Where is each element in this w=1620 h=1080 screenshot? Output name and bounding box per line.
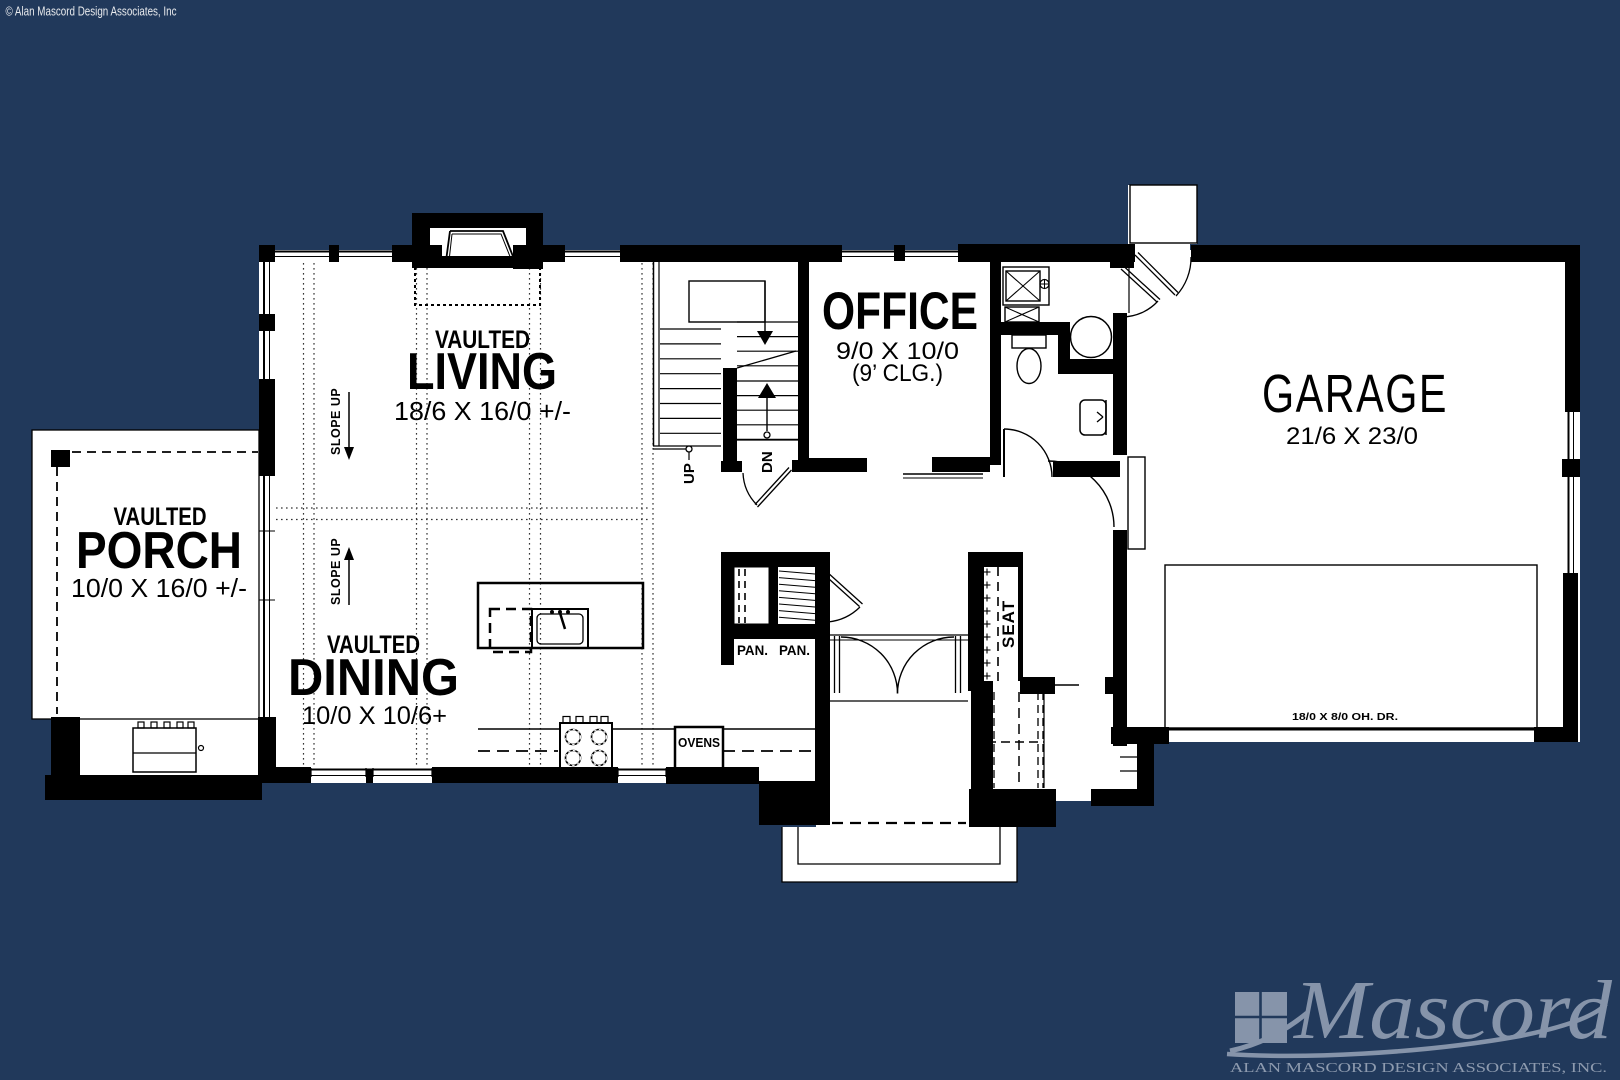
svg-text:UP: UP [681, 463, 698, 484]
svg-text:GARAGE: GARAGE [1262, 364, 1448, 424]
svg-text:OVENS: OVENS [678, 735, 720, 750]
svg-text:10/0 X 16/0 +/-: 10/0 X 16/0 +/- [71, 573, 247, 603]
svg-text:21/6 X 23/0: 21/6 X 23/0 [1286, 423, 1418, 450]
svg-text:Mascord: Mascord [1293, 964, 1613, 1057]
svg-text:18/6 X 16/0 +/-: 18/6 X 16/0 +/- [394, 396, 571, 426]
svg-text:SEAT: SEAT [999, 600, 1018, 648]
svg-text:LIVING: LIVING [407, 343, 557, 401]
svg-text:PAN.: PAN. [737, 642, 768, 658]
svg-text:PAN.: PAN. [779, 642, 810, 658]
svg-text:ALAN MASCORD DESIGN ASSOCIATES: ALAN MASCORD DESIGN ASSOCIATES, INC. [1230, 1060, 1607, 1075]
svg-text:(9’ CLG.): (9’ CLG.) [852, 360, 943, 387]
svg-text:DN: DN [759, 451, 776, 473]
svg-text:© Alan Mascord Design Associat: © Alan Mascord Design Associates, Inc [6, 4, 177, 19]
svg-text:10/0 X 10/6+: 10/0 X 10/6+ [302, 702, 447, 730]
svg-text:OFFICE: OFFICE [822, 282, 978, 341]
svg-text:DINING: DINING [288, 649, 459, 707]
svg-text:PORCH: PORCH [76, 522, 242, 580]
svg-text:SLOPE UP: SLOPE UP [329, 538, 343, 605]
svg-text:SLOPE UP: SLOPE UP [329, 388, 343, 455]
svg-text:18/0 X 8/0 OH. DR.: 18/0 X 8/0 OH. DR. [1292, 712, 1398, 723]
